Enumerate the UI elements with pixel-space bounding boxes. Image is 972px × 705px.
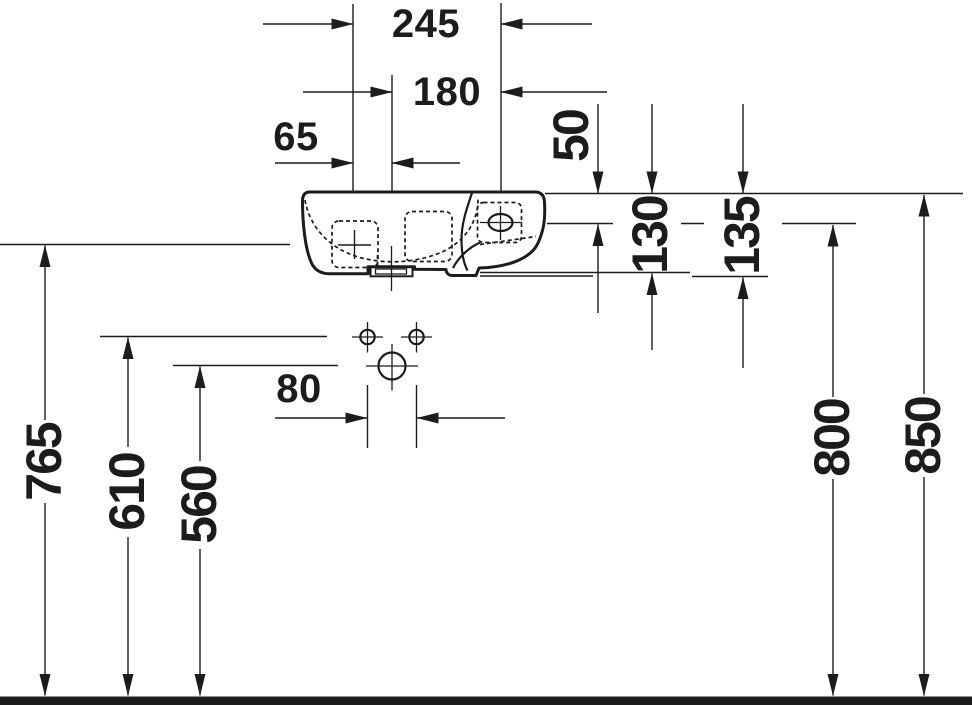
dim-label-65: 65 <box>273 115 319 159</box>
dimension-800: 800 <box>804 225 860 696</box>
dim-label-560: 560 <box>171 466 227 544</box>
dim-label-765: 765 <box>16 422 72 501</box>
dim-label-50: 50 <box>543 110 599 162</box>
dimension-50: 50 <box>543 104 599 313</box>
mounting-hole-left-icon <box>352 322 383 353</box>
extension-lines <box>0 3 963 448</box>
dim-label-180: 180 <box>413 70 481 114</box>
drain-connection-icon <box>366 344 418 391</box>
dimension-560: 560 <box>171 367 227 696</box>
dimension-765: 765 <box>16 246 72 696</box>
overflow-box-icon <box>332 221 378 268</box>
dimension-245: 245 <box>263 2 592 46</box>
dimension-65: 65 <box>273 115 460 163</box>
tap-hole-icon <box>478 203 523 243</box>
basin-outline <box>303 192 545 276</box>
dimension-135: 135 <box>714 104 770 368</box>
dim-label-610: 610 <box>99 453 155 531</box>
dimension-610: 610 <box>99 338 155 696</box>
dimension-130: 130 <box>622 104 678 350</box>
dimension-80: 80 <box>275 367 505 418</box>
floor-line <box>0 697 972 705</box>
dimension-850: 850 <box>895 195 951 696</box>
mounting-hole-right-icon <box>401 322 432 353</box>
dim-label-80: 80 <box>276 367 322 411</box>
dim-label-850: 850 <box>895 397 951 475</box>
dimension-180: 180 <box>303 70 607 114</box>
dim-label-800: 800 <box>804 399 860 477</box>
washbasin-dimension-diagram: 245 180 65 80 50 130 135 765 610 <box>0 0 972 705</box>
tap-deck-edge <box>462 193 473 271</box>
tap-deck-front-edge <box>453 243 480 269</box>
dim-label-245: 245 <box>392 2 460 46</box>
technical-drawing-page: 245 180 65 80 50 130 135 765 610 <box>0 0 972 705</box>
drain-hidden-box <box>405 212 452 262</box>
dim-label-130: 130 <box>622 196 678 274</box>
dim-label-135: 135 <box>714 196 770 275</box>
